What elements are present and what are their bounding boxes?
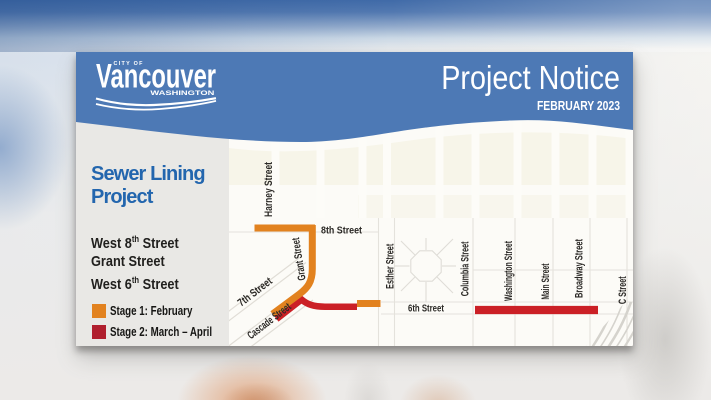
svg-text:Columbia Street: Columbia Street [459,242,471,297]
svg-text:WASHINGTON: WASHINGTON [150,90,214,97]
svg-text:C Street: C Street [617,276,629,304]
svg-text:Broadway Street: Broadway Street [572,238,585,298]
svg-text:Esther Street: Esther Street [384,244,396,289]
svg-text:8th Street: 8th Street [321,225,363,237]
svg-text:Washington Street: Washington Street [502,241,514,301]
svg-text:6th Street: 6th Street [408,303,444,314]
svg-text:Main Street: Main Street [539,264,551,300]
svg-text:Harney Street: Harney Street [263,161,275,217]
